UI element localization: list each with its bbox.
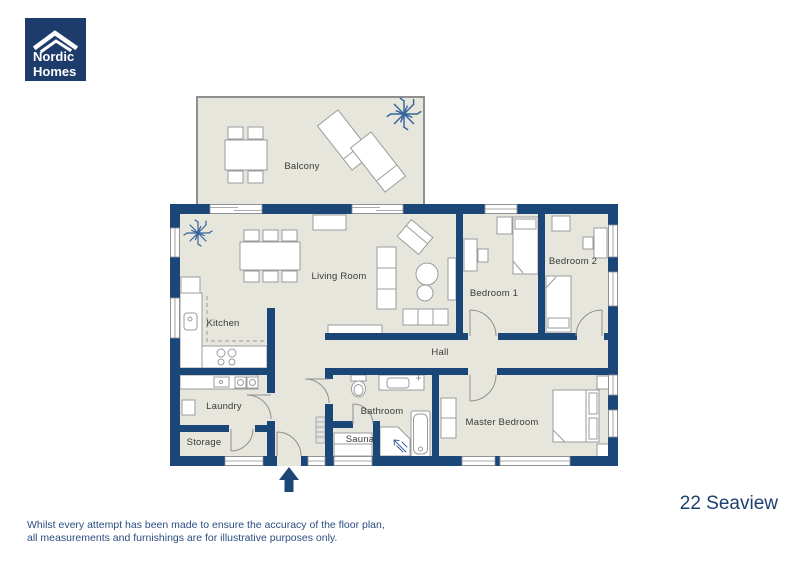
room-label-living-room: Living Room (311, 271, 366, 282)
toilet (351, 375, 366, 397)
coffee-table (416, 263, 438, 285)
sideboard (328, 325, 382, 334)
room-label-bedroom1: Bedroom 1 (470, 288, 518, 299)
room-label-laundry: Laundry (206, 401, 242, 412)
sofa (377, 247, 396, 309)
room-label-bedroom2: Bedroom 2 (549, 256, 597, 267)
logo-line2: Homes (33, 64, 76, 79)
disclaimer-line2: all measurements and furnishings are for… (27, 532, 337, 544)
sofa-small (403, 309, 448, 325)
room-label-hall: Hall (431, 347, 448, 358)
dining-set (240, 230, 300, 282)
logo-line1: Nordic (33, 49, 74, 64)
tv-unit (448, 258, 456, 300)
room-label-bathroom: Bathroom (361, 406, 404, 417)
balcony (197, 97, 424, 208)
room-label-kitchen: Kitchen (206, 318, 239, 329)
room-label-sauna: Sauna (346, 434, 375, 445)
company-logo: Nordic Homes (25, 18, 86, 81)
entrance-arrow-icon (279, 467, 299, 492)
tv-sideboard (313, 215, 346, 230)
room-label-master-bedroom: Master Bedroom (465, 417, 538, 428)
heater (316, 417, 325, 443)
disclaimer-line1: Whilst every attempt has been made to en… (27, 519, 385, 531)
floor-plan-page: Nordic Homes (0, 0, 800, 565)
bathtub (411, 411, 430, 457)
room-label-balcony: Balcony (284, 161, 319, 172)
plan-title: 22 Seaview (680, 493, 779, 514)
vanity-sink (379, 375, 424, 390)
floor-plan-drawing: Nordic Homes (0, 0, 800, 565)
room-label-storage: Storage (187, 437, 222, 448)
side-table (417, 285, 433, 301)
